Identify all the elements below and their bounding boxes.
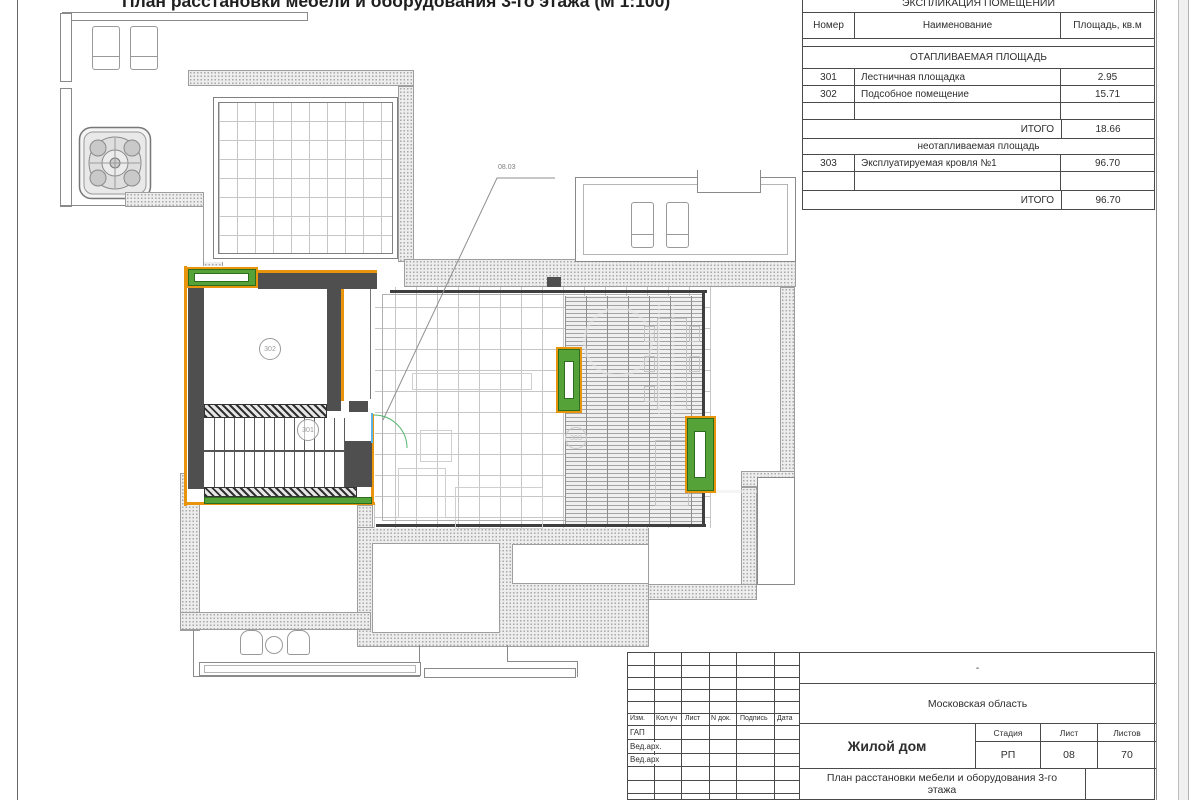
parapet-wall [180, 612, 371, 630]
green-canopy-slot [194, 273, 249, 282]
grid-line [628, 739, 799, 740]
total-label: ИТОГО [803, 191, 1062, 210]
stair-treads [214, 452, 345, 488]
roof-window-slot [694, 431, 706, 478]
roof-window-slot [564, 361, 574, 399]
region-cell: Московская область [799, 684, 1156, 724]
grid-line [628, 725, 799, 726]
total-heated: 18.66 [1062, 124, 1154, 135]
ghost-furniture [644, 326, 655, 342]
railing [62, 12, 308, 21]
sheets-value-cell: 70 [1098, 742, 1156, 769]
parapet-wall [648, 584, 757, 600]
grid-line [628, 701, 799, 702]
railing [60, 88, 72, 207]
lounge-chair [130, 26, 158, 70]
rev-header: Изм. [630, 715, 645, 722]
room-label-301: 301 [297, 419, 319, 441]
callout-leader [378, 158, 563, 428]
wall-segment [356, 279, 372, 289]
terrace-edge-line [60, 205, 127, 206]
title-block: Изм. Кол.уч Лист N док. Подпись Дата ГАП… [627, 652, 1155, 800]
wall-niche [344, 289, 371, 399]
room-label-303: 303 [565, 427, 587, 449]
grid-line [774, 653, 775, 800]
parapet-wall [357, 505, 373, 529]
parapet-wall [741, 487, 757, 599]
room-label-302: 302 [259, 338, 281, 360]
section-unheated: неотапливаемая площадь [917, 141, 1039, 152]
ghost-furniture [420, 430, 452, 462]
roof-opening [372, 543, 500, 633]
grid-line [628, 780, 799, 781]
role-label: Вед.арх [630, 755, 659, 764]
stage-label-cell: Стадия [976, 724, 1041, 742]
ghost-furniture [398, 468, 446, 518]
stair-treads [214, 418, 345, 451]
terrace-notch [697, 170, 761, 193]
row-num: 301 [803, 69, 855, 85]
explication-title: ЭКСПЛИКАЦИЯ ПОМЕЩЕНИЙ [902, 0, 1055, 12]
grid-line [681, 653, 682, 800]
total-unheated: 96.70 [1062, 195, 1154, 206]
grid-line [628, 766, 799, 767]
grid-line [628, 677, 799, 678]
doc-title-cell: План расстановки мебели и оборудования 3… [799, 769, 1086, 800]
lounge-chair [92, 26, 120, 70]
sheet-frame-right [1156, 0, 1157, 800]
grid-line [628, 689, 799, 690]
terrace-edge-line [193, 676, 420, 677]
grid-line [628, 713, 799, 714]
planter-inner [204, 665, 416, 673]
roof-opening [512, 544, 649, 584]
row-num: 302 [803, 86, 855, 102]
jacuzzi [78, 126, 152, 200]
planter [424, 668, 576, 678]
parapet-wall [125, 192, 215, 207]
row-empty [803, 103, 855, 119]
ghost-furniture [455, 487, 543, 529]
terrace-edge-line [193, 630, 194, 677]
total-label: ИТОГО [803, 120, 1062, 138]
row-num: 303 [803, 155, 855, 171]
ghost-furniture [689, 356, 700, 372]
chair [240, 630, 263, 655]
skylight-grid [218, 102, 393, 254]
col-header-area: Площадь, кв.м [1061, 20, 1154, 31]
grid-line [628, 753, 799, 754]
terrace-edge-line [507, 645, 508, 662]
ghost-furniture [689, 326, 700, 342]
drawing-title: План расстановки мебели и оборудования 3… [122, 0, 670, 12]
row-name: Лестничная площадка [855, 69, 1061, 85]
sheets-label-cell: Листов [1098, 724, 1156, 742]
page-edge [1178, 0, 1189, 800]
wall-segment [188, 288, 204, 489]
rev-header: N док. [711, 715, 731, 722]
callout-label: 08.03 [498, 164, 516, 171]
grid-line [709, 653, 710, 800]
rev-header: Кол.уч [656, 715, 677, 722]
lounge-chair [631, 202, 654, 248]
grid-line [736, 653, 737, 800]
round-table [265, 636, 283, 654]
row-area: 15.71 [1061, 89, 1154, 100]
col-header-num: Номер [803, 13, 855, 38]
grid-line [654, 653, 655, 800]
parapet-wall [188, 70, 414, 86]
rev-header: Подпись [740, 715, 768, 722]
ghost-furniture [644, 356, 655, 372]
door-swing [366, 408, 416, 463]
green-canopy [204, 497, 372, 504]
role-label: ГАП [630, 728, 645, 737]
watermark [583, 307, 653, 377]
drawing-sheet: План расстановки мебели и оборудования 3… [0, 0, 1200, 800]
ghost-furniture [644, 386, 655, 402]
window-sill [204, 404, 327, 418]
row-empty [855, 172, 1061, 190]
ghost-furniture [655, 440, 689, 506]
rev-header: Лист [685, 715, 700, 722]
table-spacer [803, 39, 1154, 47]
terrace-edge-line [577, 661, 578, 677]
window-sill [204, 487, 357, 497]
role-label: Вед.арх. [630, 742, 662, 751]
explication-table: ЭКСПЛИКАЦИЯ ПОМЕЩЕНИЙ Номер Наименование… [802, 0, 1155, 210]
col-header-name: Наименование [855, 13, 1061, 38]
row-area: 2.95 [1061, 72, 1154, 83]
railing [60, 13, 72, 82]
sheet-value-cell: 08 [1041, 742, 1098, 769]
row-area: 96.70 [1061, 158, 1154, 169]
stage-value-cell: РП [976, 742, 1041, 769]
parapet-wall [780, 287, 795, 475]
ghost-furniture [657, 318, 687, 410]
grid-line [628, 793, 799, 794]
row-name: Подсобное помещение [855, 86, 1061, 102]
chair [287, 630, 310, 655]
lower-roof-step [757, 477, 795, 585]
sheet-label-cell: Лист [1041, 724, 1098, 742]
lounge-chair [666, 202, 689, 248]
doc-code-cell: - [799, 653, 1156, 684]
rev-header: Дата [777, 715, 793, 722]
grid-line [628, 665, 799, 666]
row-empty [803, 172, 855, 190]
row-empty [855, 103, 1061, 119]
row-name: Эксплуатируемая кровля №1 [855, 155, 1061, 171]
terrace-edge-line [507, 661, 578, 662]
wall-segment [327, 273, 341, 411]
section-heated: ОТАПЛИВАЕМАЯ ПЛОЩАДЬ [910, 52, 1047, 63]
insulation-strip [184, 266, 187, 506]
project-cell: Жилой дом [799, 724, 976, 769]
sheet-frame-left [17, 0, 18, 800]
